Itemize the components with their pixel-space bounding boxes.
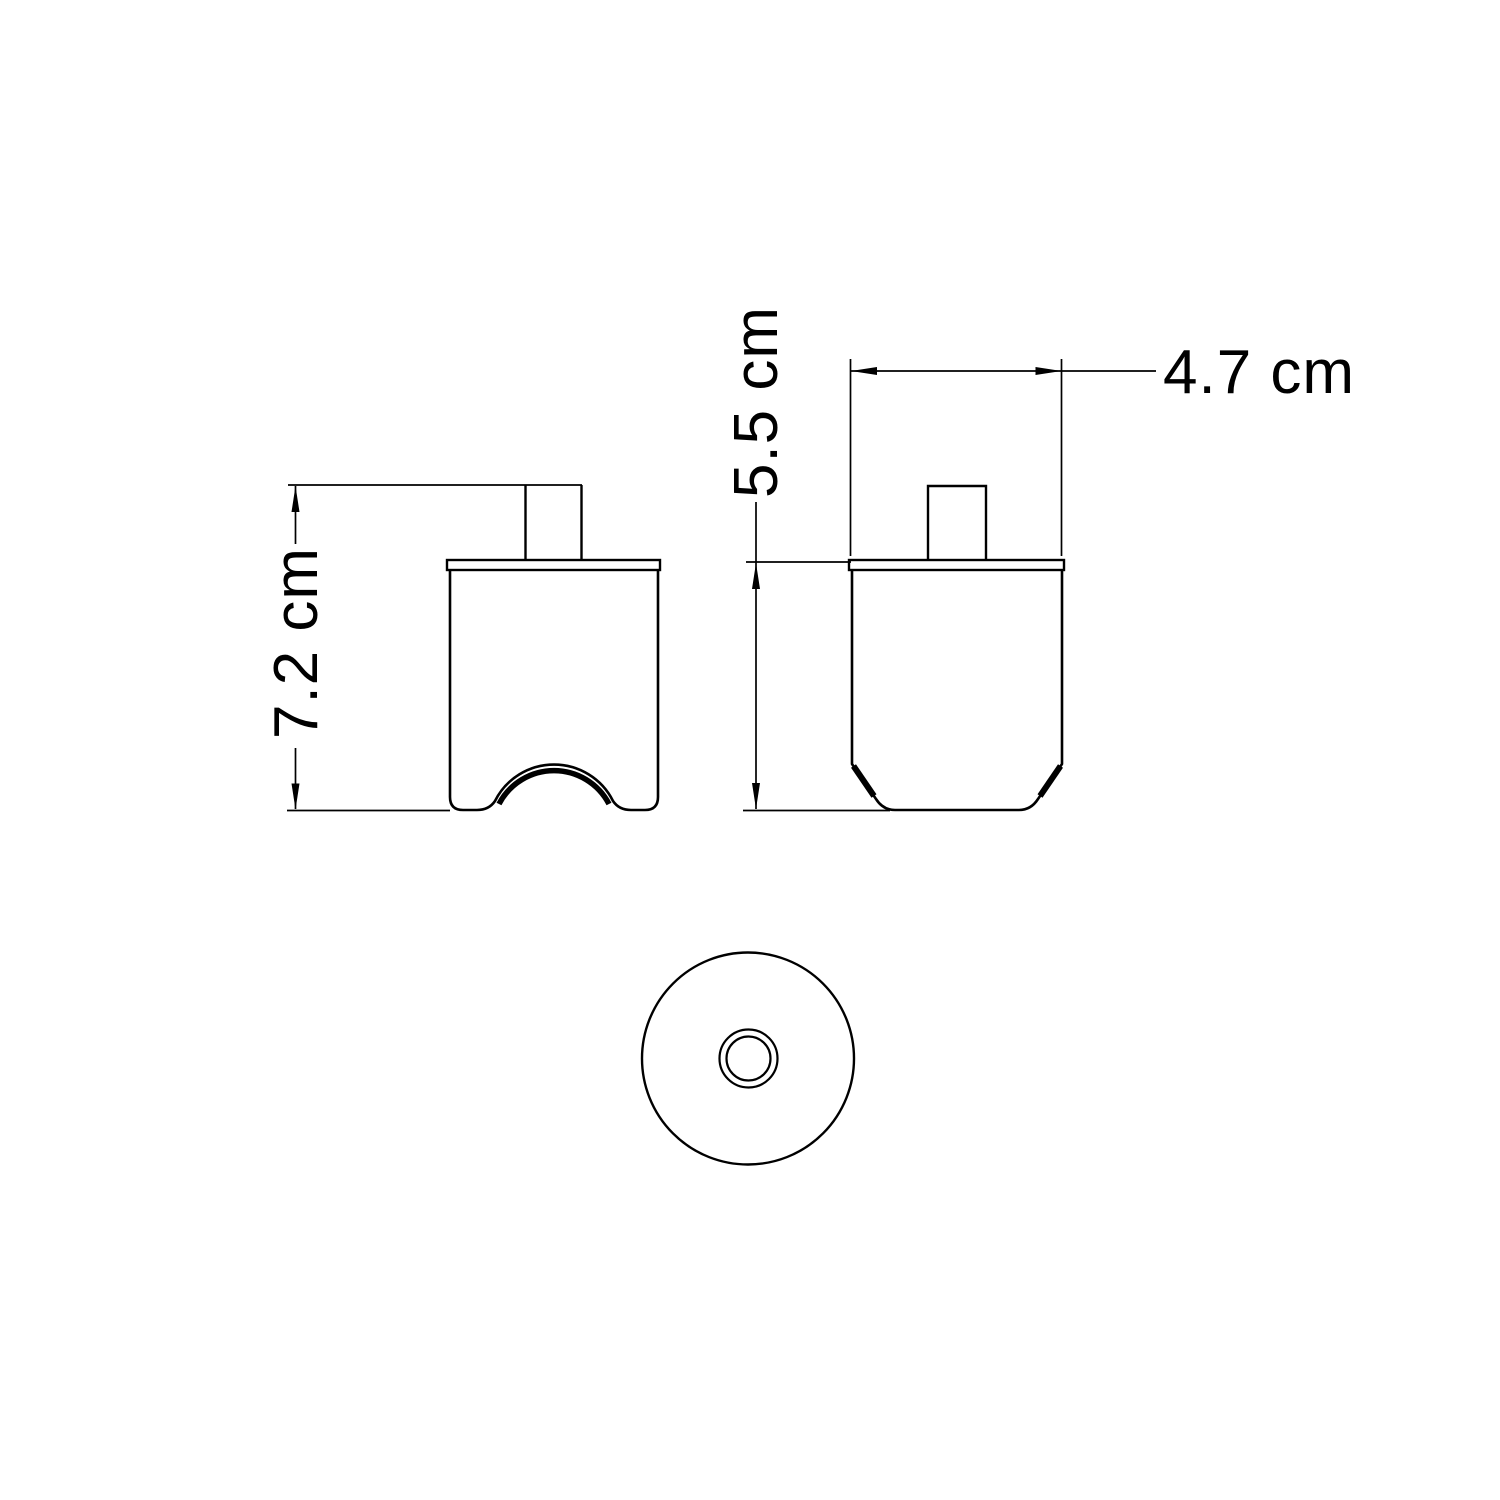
front-view-body-outline xyxy=(450,570,658,810)
arrow-up-icon xyxy=(292,486,300,512)
bottom-view-hole-outer-circle xyxy=(720,1030,778,1088)
arrow-down-icon xyxy=(292,784,300,810)
dim-47-label: 4.7 cm xyxy=(1163,338,1355,407)
front-view-cap-plate xyxy=(447,560,660,570)
side-view-stem xyxy=(928,486,986,561)
dimension-body-width: 4.7 cm xyxy=(851,338,1356,556)
front-view xyxy=(447,485,660,810)
bottom-view-outer-circle xyxy=(642,953,854,1165)
arrow-down-icon xyxy=(752,783,760,809)
arrow-right-icon xyxy=(1036,367,1062,375)
technical-drawing-page: 7.2 cm 4.7 cm xyxy=(0,0,1500,1500)
side-view xyxy=(849,486,1064,810)
lamp-holder-dimension-drawing: 7.2 cm 4.7 cm xyxy=(0,0,1500,1500)
side-view-cap-plate xyxy=(849,560,1064,570)
arrow-up-icon xyxy=(752,563,760,589)
bottom-view-hole-inner-circle xyxy=(727,1037,771,1081)
dim-72-label: 7.2 cm xyxy=(262,547,331,739)
bottom-view xyxy=(642,953,854,1165)
dim-55-label: 5.5 cm xyxy=(722,306,791,498)
side-view-body-outline xyxy=(852,570,1062,810)
arrow-left-icon xyxy=(851,367,877,375)
